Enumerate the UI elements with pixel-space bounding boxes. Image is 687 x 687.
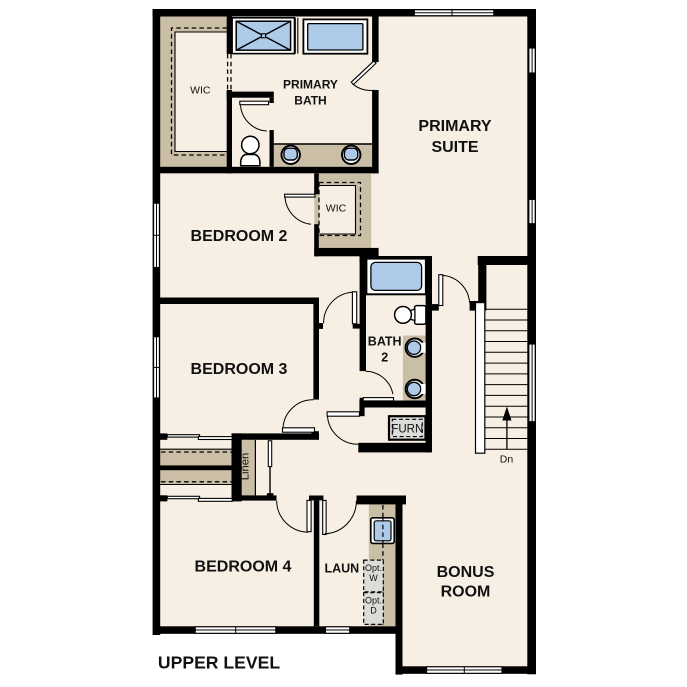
svg-text:W: W [369,573,378,583]
svg-text:ROOM: ROOM [441,584,491,601]
svg-text:BATH: BATH [294,94,326,108]
svg-text:Dn: Dn [500,454,514,466]
svg-text:D: D [370,606,377,616]
svg-text:PRIMARY: PRIMARY [418,118,492,135]
svg-text:WIC: WIC [326,203,347,215]
svg-text:BATH: BATH [368,335,402,349]
svg-text:Opt.: Opt. [365,596,382,606]
svg-text:UPPER LEVEL: UPPER LEVEL [158,653,280,673]
svg-text:BEDROOM 3: BEDROOM 3 [191,361,288,378]
svg-text:BONUS: BONUS [437,564,495,581]
svg-text:Opt.: Opt. [365,563,382,573]
svg-text:2: 2 [381,351,388,365]
svg-text:LAUN: LAUN [324,562,359,576]
svg-text:PRIMARY: PRIMARY [283,78,338,92]
svg-text:WIC: WIC [190,85,211,97]
svg-text:BEDROOM 4: BEDROOM 4 [195,559,292,576]
svg-text:FURN: FURN [391,423,423,435]
svg-text:BEDROOM 2: BEDROOM 2 [191,228,288,245]
svg-text:Linen: Linen [239,453,251,480]
svg-text:SUITE: SUITE [431,139,478,156]
